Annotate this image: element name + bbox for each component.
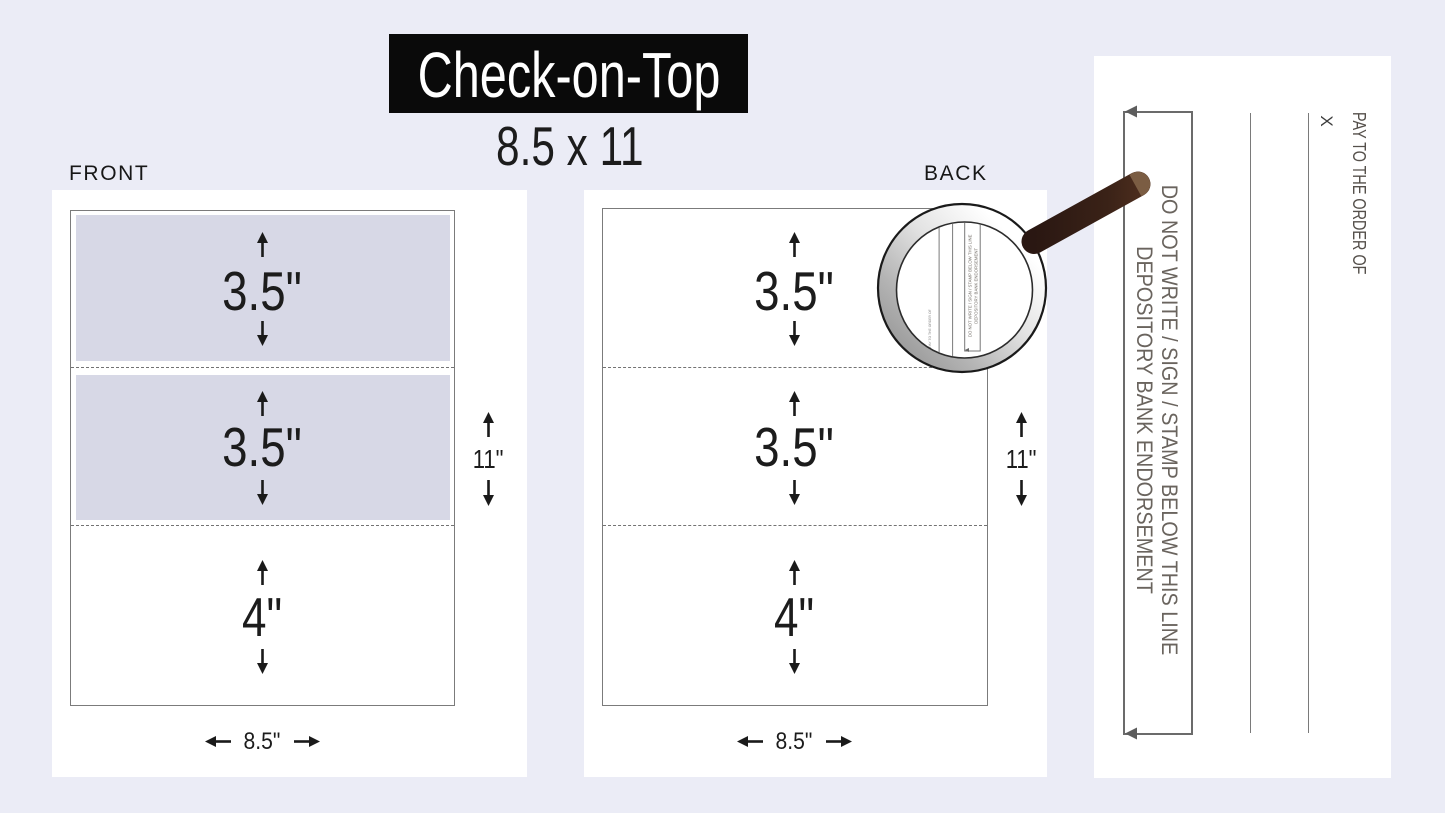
svg-text:DEPOSITORY BANK ENDORSEMENT: DEPOSITORY BANK ENDORSEMENT (973, 248, 978, 324)
svg-text:PAY TO THE ORDER OF: PAY TO THE ORDER OF (928, 309, 932, 347)
svg-text:DO NOT WRITE / SIGN / STAMP BE: DO NOT WRITE / SIGN / STAMP BELOW THIS L… (967, 234, 972, 337)
